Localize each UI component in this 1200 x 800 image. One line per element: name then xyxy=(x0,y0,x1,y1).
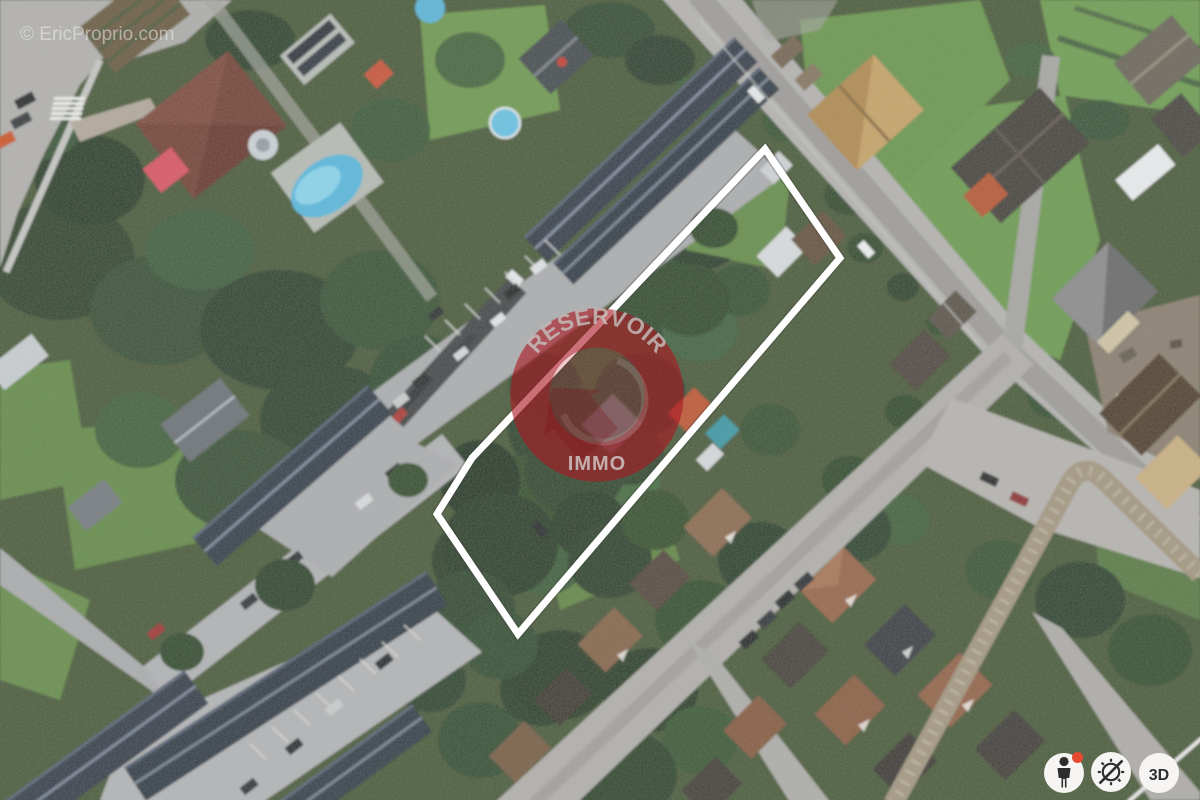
svg-text:IMMO: IMMO xyxy=(568,453,626,475)
svg-text:3D: 3D xyxy=(1149,767,1169,784)
svg-text:© EricProprio.com: © EricProprio.com xyxy=(20,24,174,45)
